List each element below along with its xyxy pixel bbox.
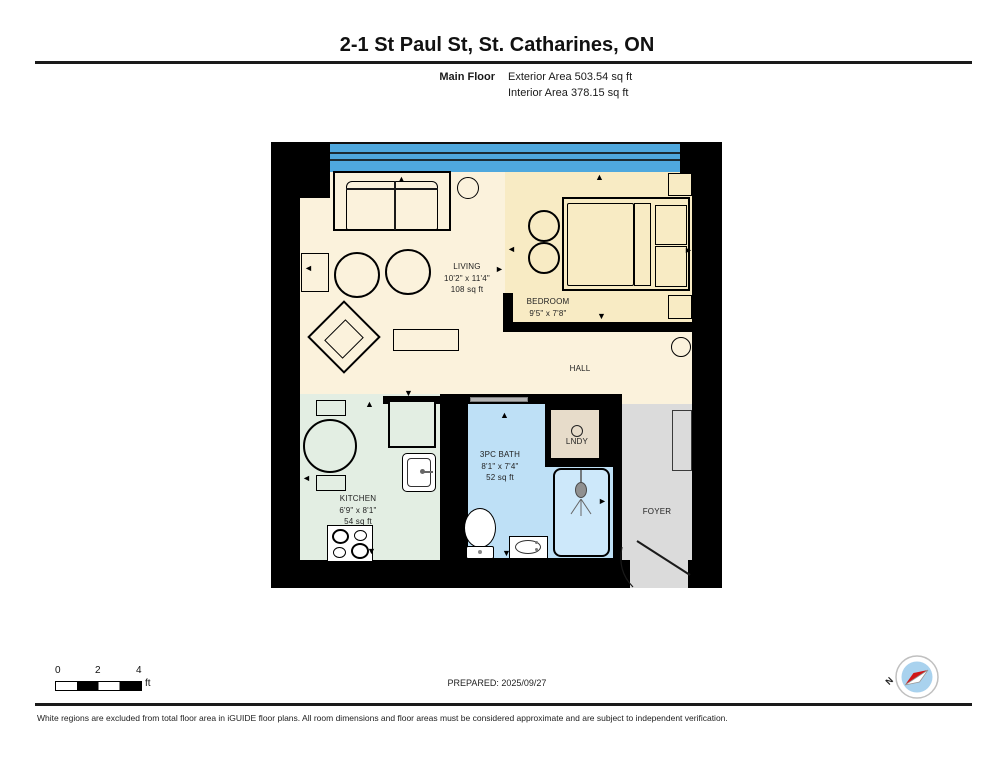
toilet-button-icon: [478, 550, 482, 554]
dining-table: [303, 419, 357, 473]
wall-top-left: [271, 142, 330, 198]
bath-sliding-door: [470, 397, 528, 402]
shower: [553, 468, 610, 557]
side-table: [457, 177, 479, 199]
scale-tick-label: 0: [55, 665, 61, 676]
bed-mattress: [567, 203, 634, 286]
floor-plan-page: { "header": { "title": "2-1 St Paul St, …: [0, 0, 994, 768]
dimension-arrow-icon: ◄: [304, 264, 313, 273]
hall-stool: [671, 337, 691, 357]
dimension-arrow-icon: ◄: [450, 497, 459, 506]
window-mullion: [330, 159, 680, 161]
dimension-arrow-icon: ►: [598, 497, 607, 506]
bed-pillow: [634, 203, 651, 286]
sofa-back-line: [346, 188, 438, 190]
armchair: [334, 252, 380, 298]
bed-headboard: [655, 246, 687, 287]
page-title: 2-1 St Paul St, St. Catharines, ON: [0, 34, 994, 57]
dimension-arrow-icon: ▼: [502, 549, 511, 558]
faucet-icon: [535, 541, 538, 544]
dimension-arrow-icon: ▲: [595, 173, 604, 182]
laundry-label: LNDY: [557, 436, 597, 448]
foyer-label: FOYER: [627, 506, 687, 518]
nightstand: [668, 295, 692, 319]
floor-label: Main Floor: [377, 71, 495, 83]
scale-tick-label: 4: [136, 665, 142, 676]
prepared-date: PREPARED: 2025/09/27: [0, 678, 994, 688]
floor-plan: ▲ ◄ ► ▲ ◄ ► ▼ ▼ ▲ ◄ ▼ ▲ ◄ ► ▼ LIVING 10'…: [271, 142, 722, 588]
foyer-closet: [672, 410, 692, 471]
kitchen-label: KITCHEN 6'9" x 8'1" 54 sq ft: [318, 493, 398, 528]
compass-icon: [894, 654, 940, 700]
bed-headboard: [655, 205, 687, 245]
wall-bath-top: [440, 394, 622, 404]
pouf: [528, 210, 560, 242]
refrigerator: [388, 400, 436, 448]
faucet-icon: [424, 471, 433, 473]
window-mullion: [330, 152, 680, 154]
entry-door: [616, 537, 696, 588]
scale-tick-label: 2: [95, 665, 101, 676]
nightstand: [668, 173, 692, 196]
window-band: [330, 142, 680, 172]
header-divider: [35, 61, 972, 64]
dining-chair: [316, 475, 346, 491]
living-label: LIVING 10'2" x 11'4" 108 sq ft: [417, 261, 517, 296]
coffee-table: [393, 329, 459, 351]
bath-label: 3PC BATH 8'1" x 7'4" 52 sq ft: [460, 449, 540, 484]
footer-divider: [35, 703, 972, 706]
exterior-area: Exterior Area 503.54 sq ft: [508, 71, 632, 83]
dimension-arrow-icon: ◄: [302, 474, 311, 483]
disclaimer-text: White regions are excluded from total fl…: [37, 713, 728, 723]
shower-head-icon: [555, 470, 608, 555]
pouf: [528, 242, 560, 274]
wall-bedroom-bottom: [503, 322, 692, 332]
burner-icon: [333, 547, 346, 558]
burner-icon: [354, 530, 367, 541]
dining-chair: [316, 400, 346, 416]
interior-area: Interior Area 378.15 sq ft: [508, 87, 628, 99]
burner-icon: [332, 529, 349, 544]
dimension-arrow-icon: ▲: [365, 400, 374, 409]
dimension-arrow-icon: ◄: [507, 245, 516, 254]
compass: N: [880, 650, 940, 700]
hall-label: HALL: [550, 363, 610, 375]
faucet-icon: [535, 548, 538, 551]
dimension-arrow-icon: ►: [684, 246, 693, 255]
dimension-arrow-icon: ▼: [597, 312, 606, 321]
dimension-arrow-icon: ▲: [500, 411, 509, 420]
dimension-arrow-icon: ▼: [404, 389, 413, 398]
dimension-arrow-icon: ▼: [367, 547, 376, 556]
dimension-arrow-icon: ▲: [397, 175, 406, 184]
toilet: [464, 508, 496, 548]
wall-top-right: [680, 142, 722, 174]
bedroom-label: BEDROOM 9'5" x 7'8": [508, 296, 588, 319]
